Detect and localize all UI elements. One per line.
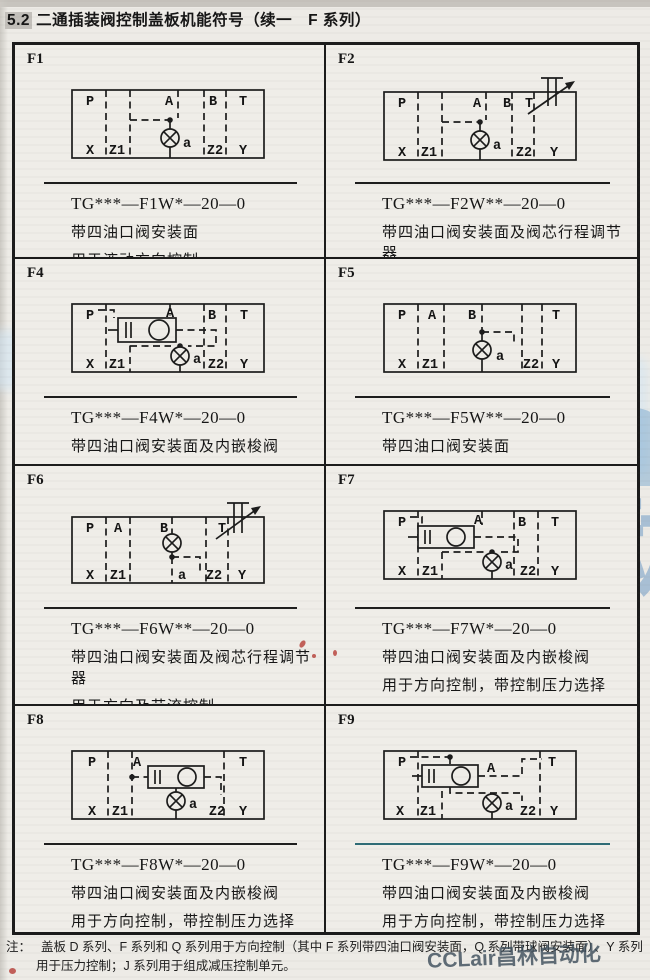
valve-label-a: a xyxy=(492,139,500,154)
model-code-f9: TG***—F9W*—20—0 xyxy=(382,855,627,875)
section-number: 5.2 xyxy=(5,12,32,29)
description-line-1: 带四油口阀安装面及内嵌梭阀 xyxy=(71,435,314,456)
description-line-1: 带四油口阀安装面及内嵌梭阀 xyxy=(382,882,627,903)
valve-label-a: a xyxy=(192,353,200,368)
hydraulic-schematic-f4: P A B T X Z1 a Z2 Y xyxy=(66,288,276,388)
port-label-a-top: A xyxy=(164,95,173,110)
port-label-x: X xyxy=(397,358,406,373)
description-line-1: 带四油口阀安装面及阀芯行程调节器 xyxy=(71,646,314,688)
cell-f8: F8 xyxy=(15,706,326,932)
port-label-z1: Z1 xyxy=(111,805,127,820)
description-line-2: 用于方向控制，带控制压力选择 xyxy=(382,674,627,695)
cell-label-f7: F7 xyxy=(338,472,627,489)
port-label-t: T xyxy=(217,522,225,537)
footnote-label: 注： xyxy=(6,940,31,954)
port-label-z1: Z1 xyxy=(421,565,437,580)
description-line-1: 带四油口阀安装面 xyxy=(382,435,627,456)
port-label-t: T xyxy=(550,516,558,531)
separator-line xyxy=(44,396,297,398)
cell-f5: F5 P A B xyxy=(326,259,637,466)
port-label-z1: Z1 xyxy=(109,569,125,584)
port-label-p: P xyxy=(397,97,405,112)
cell-label-f2: F2 xyxy=(338,51,627,68)
port-label-x: X xyxy=(85,569,94,584)
port-label-p: P xyxy=(397,516,405,531)
separator-line xyxy=(355,607,609,609)
cell-label-f5: F5 xyxy=(338,265,627,282)
model-code-f4: TG***—F4W*—20—0 xyxy=(71,408,314,428)
model-code-f8: TG***—F8W*—20—0 xyxy=(71,855,314,875)
shuttle-ball xyxy=(149,320,169,340)
cell-label-f1: F1 xyxy=(27,51,314,68)
valve-label-a: a xyxy=(495,350,503,365)
hydraulic-schematic-f2: P A B T X Z1 a Z2 Y xyxy=(378,74,588,174)
symbol-table: F1 P A B xyxy=(12,42,640,935)
port-label-p: P xyxy=(87,756,95,771)
cell-label-f6: F6 xyxy=(27,472,314,489)
model-code-f2: TG***—F2W**—20—0 xyxy=(382,194,627,214)
port-label-x: X xyxy=(85,358,94,373)
port-label-b: B xyxy=(467,309,475,324)
port-label-y: Y xyxy=(239,358,248,373)
port-label-z2: Z2 xyxy=(515,146,531,161)
separator-line xyxy=(44,607,297,609)
port-label-x: X xyxy=(85,144,94,159)
hydraulic-schematic-f7: P A B T X Z1 a Z2 Y xyxy=(378,495,588,599)
shuttle-ball xyxy=(447,528,465,546)
cell-f7: F7 xyxy=(326,466,637,706)
separator-line xyxy=(44,843,297,845)
model-code-f1: TG***—F1W*—20—0 xyxy=(71,194,314,214)
port-label-y: Y xyxy=(551,358,560,373)
port-label-t: T xyxy=(238,756,246,771)
port-label-z1: Z1 xyxy=(420,146,436,161)
port-label-b: B xyxy=(208,95,216,110)
port-label-y: Y xyxy=(238,805,247,820)
valve-label-a: a xyxy=(182,137,190,152)
port-label-z2: Z2 xyxy=(519,805,535,820)
cell-f2: F2 xyxy=(326,45,637,259)
hydraulic-schematic-f5: P A B T X Z1 a Z2 Y xyxy=(378,288,588,388)
page-title: 5.2二通插装阀控制盖板机能符号（续一 F 系列） xyxy=(5,8,371,30)
port-label-z1: Z1 xyxy=(421,358,437,373)
port-label-z2: Z2 xyxy=(206,144,222,159)
port-label-z1: Z1 xyxy=(419,805,435,820)
port-label-p: P xyxy=(85,522,93,537)
description-line-1: 带四油口阀安装面及阀芯行程调节器 xyxy=(382,221,627,259)
shuttle-ball xyxy=(178,768,196,786)
port-label-a-top: A xyxy=(165,307,174,322)
description-line-1: 带四油口阀安装面及内嵌梭阀 xyxy=(382,646,627,667)
cell-f4: F4 xyxy=(15,259,326,466)
separator-line xyxy=(355,396,609,398)
valve-label-a: a xyxy=(188,798,196,813)
hydraulic-schematic-f8: P A T X Z1 a Z2 Y xyxy=(66,735,276,835)
model-code-f6: TG***—F6W**—20—0 xyxy=(71,619,314,639)
hydraulic-schematic-f6: P A B T X Z1 a Z2 Y xyxy=(66,495,276,599)
port-label-p: P xyxy=(85,95,93,110)
port-label-a-top: A xyxy=(427,309,436,324)
port-label-p: P xyxy=(397,309,405,324)
description-line-1: 带四油口阀安装面 xyxy=(71,221,314,242)
description-line-2: 用于方向控制，带控制压力选择 xyxy=(382,910,627,931)
port-label-z2: Z2 xyxy=(522,358,538,373)
port-label-b: B xyxy=(502,97,510,112)
port-label-z2: Z2 xyxy=(205,569,221,584)
port-label-a-top: A xyxy=(473,514,482,529)
port-label-y: Y xyxy=(237,569,246,584)
port-label-x: X xyxy=(397,565,406,580)
section-title-text: 二通插装阀控制盖板机能符号（续一 F 系列） xyxy=(36,12,371,29)
port-label-b: B xyxy=(159,522,167,537)
cell-label-f8: F8 xyxy=(27,712,314,729)
description-line-1: 带四油口阀安装面及内嵌梭阀 xyxy=(71,882,314,903)
shuttle-ball xyxy=(452,767,470,785)
port-label-t: T xyxy=(524,97,532,112)
valve-label-a: a xyxy=(504,559,512,574)
scan-edge-top xyxy=(0,0,650,7)
port-label-a-top: A xyxy=(472,97,481,112)
model-code-f5: TG***—F5W**—20—0 xyxy=(382,408,627,428)
port-label-a-top: A xyxy=(132,756,141,771)
description-line-2: 用于方向控制，带控制压力选择 xyxy=(71,910,314,931)
scanned-catalog-page: 5.2二通插装阀控制盖板机能符号（续一 F 系列） CCLair 昌林自动化 F… xyxy=(0,0,650,980)
cell-f9: F9 xyxy=(326,706,637,932)
port-label-z2: Z2 xyxy=(519,565,535,580)
port-label-x: X xyxy=(397,146,406,161)
separator-line xyxy=(355,182,609,184)
model-code-f7: TG***—F7W*—20—0 xyxy=(382,619,627,639)
port-label-t: T xyxy=(239,309,247,324)
port-label-y: Y xyxy=(549,805,558,820)
cell-label-f9: F9 xyxy=(338,712,627,729)
port-label-y: Y xyxy=(550,565,559,580)
port-label-y: Y xyxy=(238,144,247,159)
port-label-p: P xyxy=(397,756,405,771)
port-label-z2: Z2 xyxy=(208,805,224,820)
port-label-x: X xyxy=(87,805,96,820)
separator-line xyxy=(44,182,297,184)
scan-edge-left xyxy=(0,0,8,980)
port-label-p: P xyxy=(85,309,93,324)
port-label-a-top: A xyxy=(113,522,122,537)
port-label-y: Y xyxy=(549,146,558,161)
separator-line xyxy=(355,843,609,845)
port-label-z1: Z1 xyxy=(108,358,124,373)
cell-f1: F1 P A B xyxy=(15,45,326,259)
port-label-a-bottom: a xyxy=(177,569,185,584)
description-line-2: 用于方向及节流控制 xyxy=(71,695,314,706)
valve-label-a: a xyxy=(504,800,512,815)
port-label-z1: Z1 xyxy=(108,144,124,159)
port-label-t: T xyxy=(551,309,559,324)
cell-label-f4: F4 xyxy=(27,265,314,282)
description-line-2: 用于液动方向控制 xyxy=(71,249,314,259)
port-label-z2: Z2 xyxy=(207,358,223,373)
port-label-x: X xyxy=(395,805,404,820)
cell-f6: F6 xyxy=(15,466,326,706)
port-label-t: T xyxy=(547,756,555,771)
hydraulic-schematic-f9: P A T X Z1 a Z2 Y xyxy=(378,735,588,835)
hydraulic-schematic-f1: P A B T X Z1 a Z2 Y xyxy=(66,74,276,174)
port-label-b: B xyxy=(517,516,525,531)
port-label-b: B xyxy=(207,309,215,324)
port-label-a-mid: A xyxy=(486,762,495,777)
port-label-t: T xyxy=(238,95,246,110)
